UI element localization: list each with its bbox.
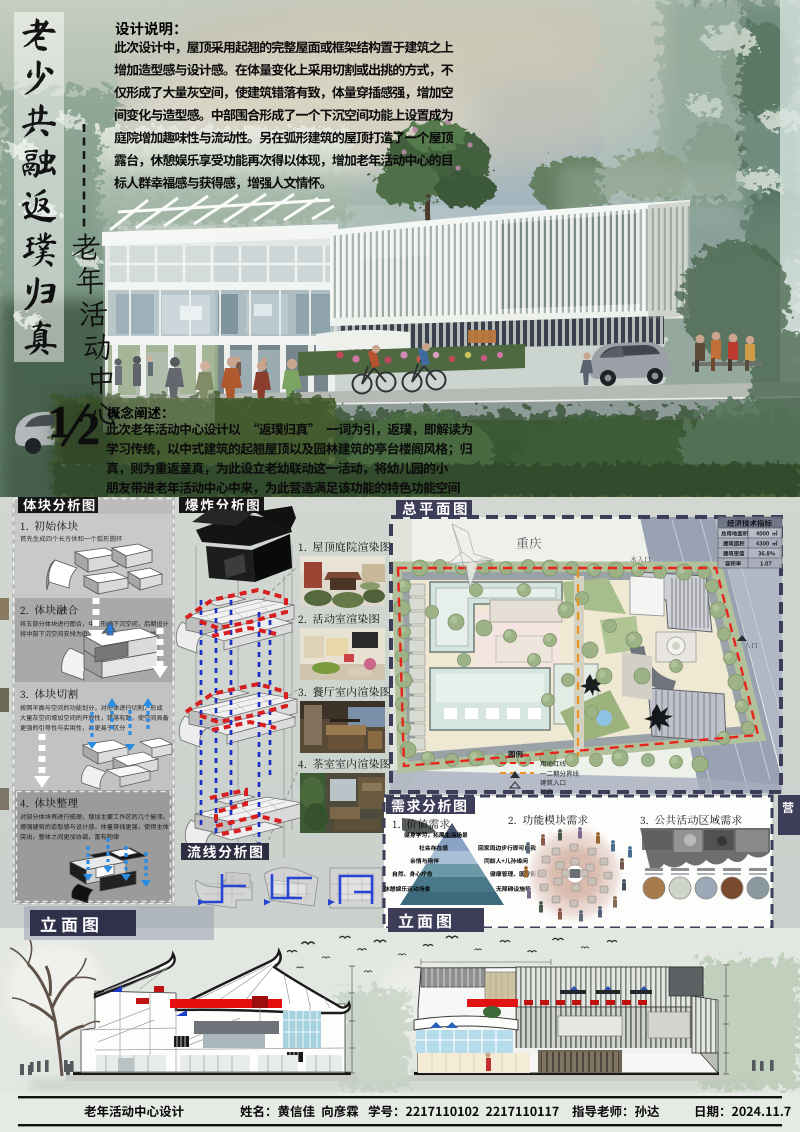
svg-text:2: 2 — [77, 403, 100, 454]
